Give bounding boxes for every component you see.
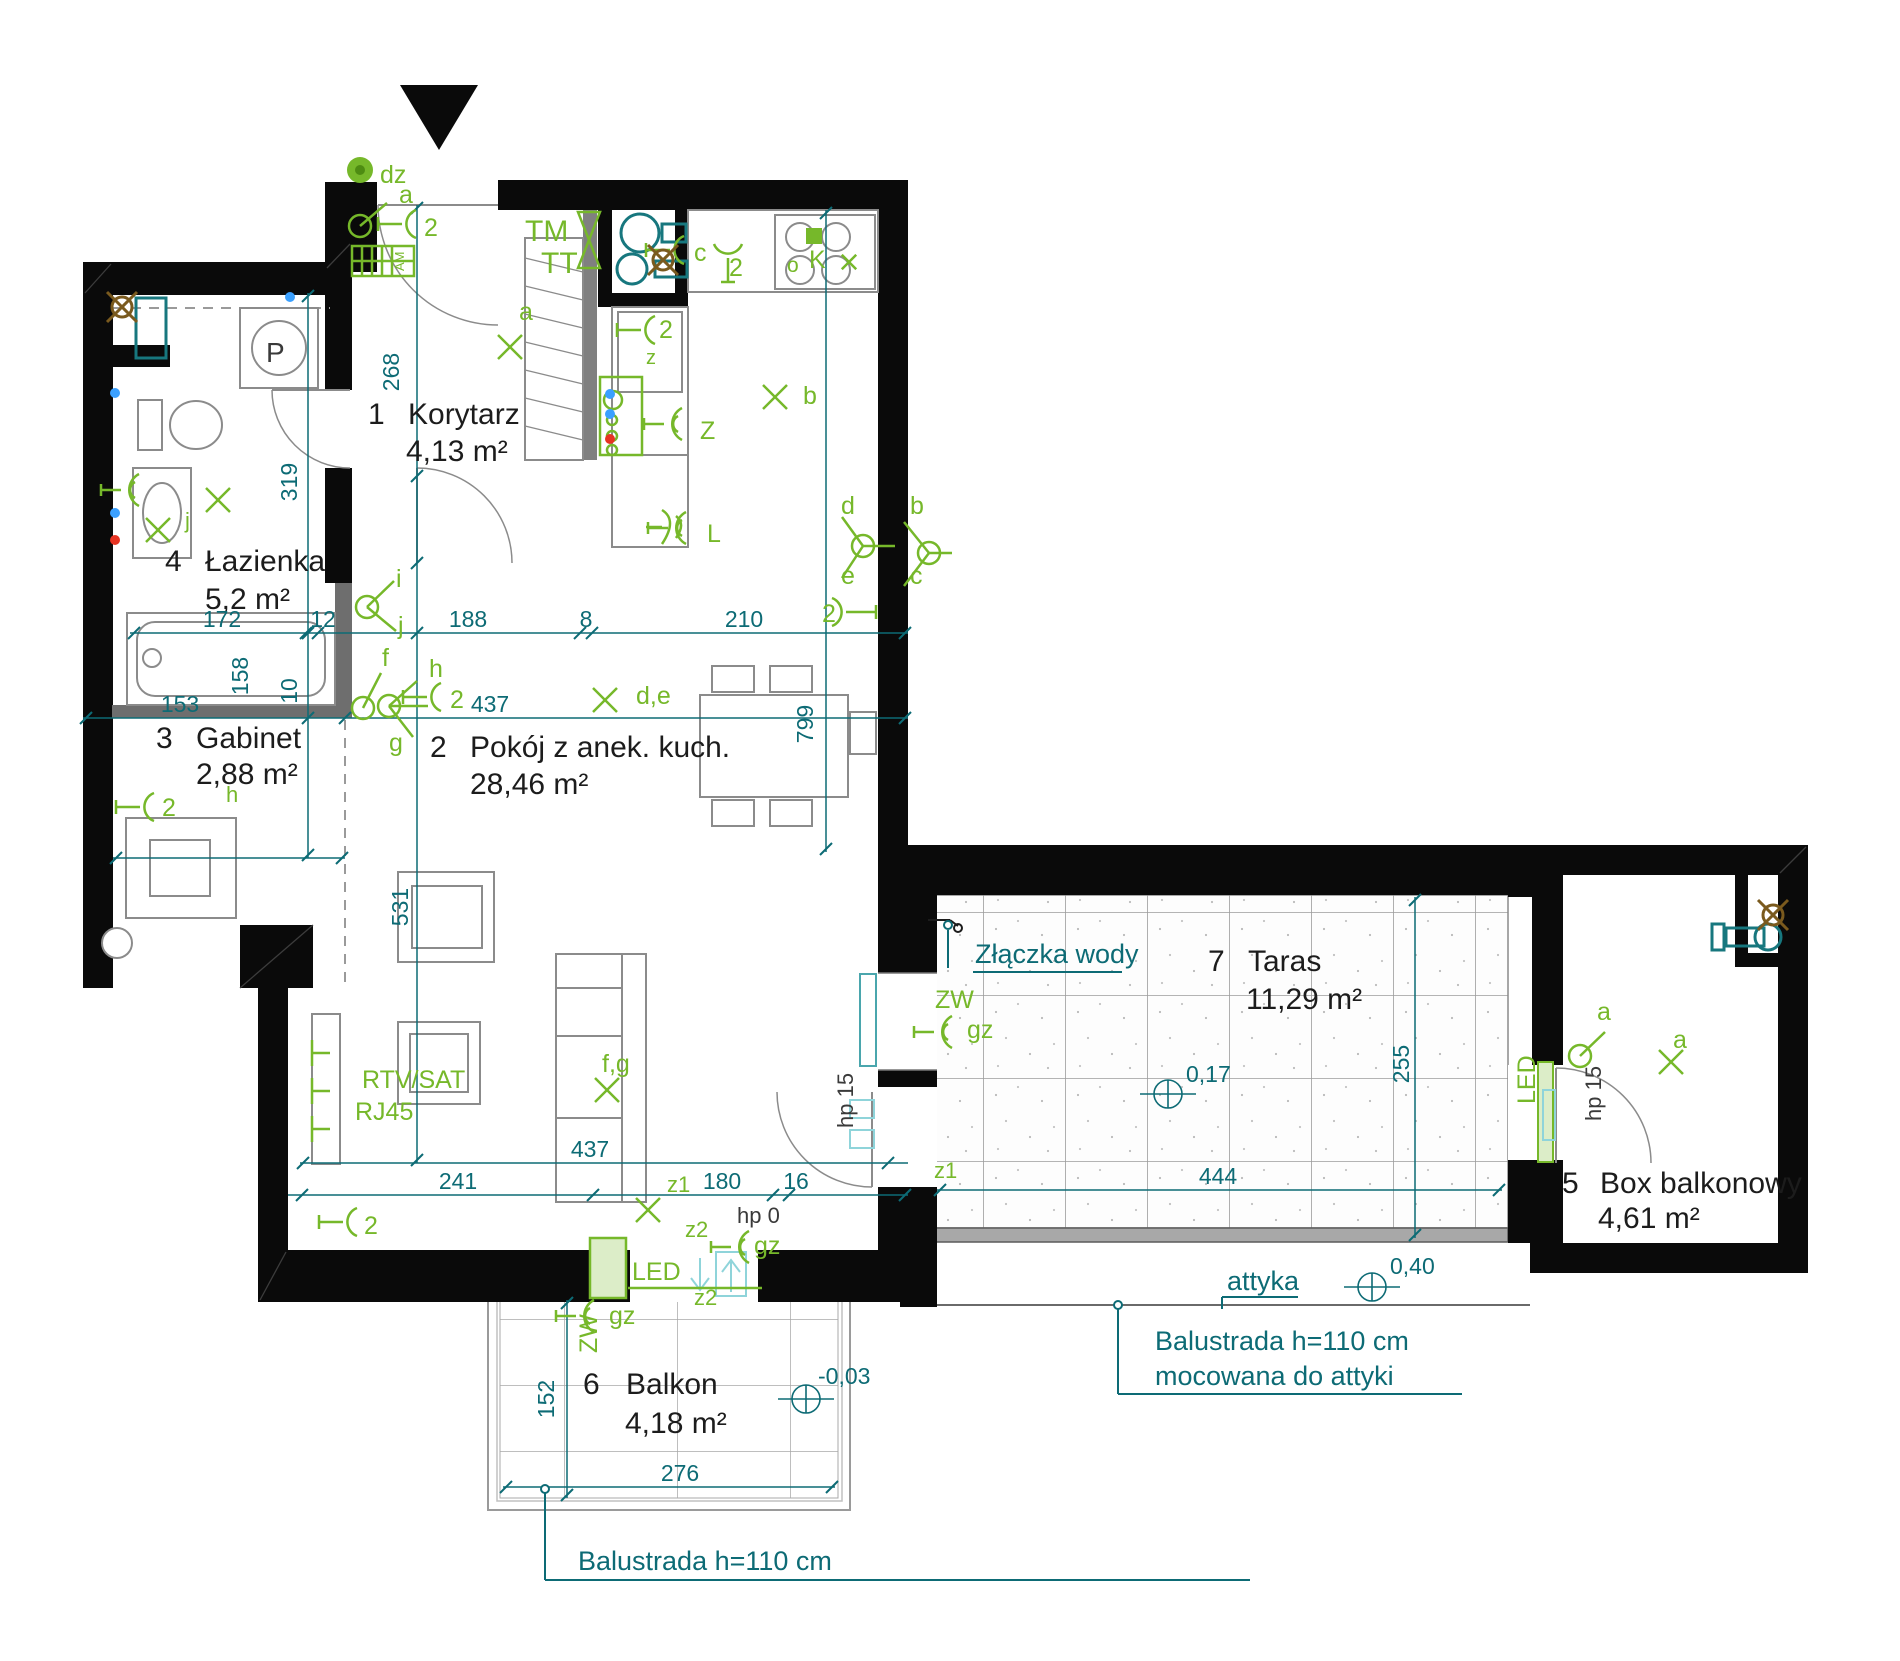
elevation-label: 0,17 bbox=[1186, 1061, 1231, 1087]
rtv-socket-icons bbox=[312, 1040, 330, 1142]
chair bbox=[770, 666, 812, 692]
room-area: 28,46 m² bbox=[470, 768, 588, 801]
room-name: Korytarz bbox=[408, 398, 520, 431]
electric-label: gz bbox=[609, 1302, 635, 1330]
electric-label: TT bbox=[541, 247, 578, 280]
kitchen-sink-bowl bbox=[617, 254, 647, 284]
tv-stand bbox=[312, 1014, 340, 1164]
note-label: mocowana do attyki bbox=[1155, 1361, 1394, 1391]
height-label: hp 15 bbox=[833, 1073, 858, 1128]
sock-icon bbox=[116, 793, 154, 821]
room-number: 4 bbox=[165, 545, 182, 578]
electric-label: 2 bbox=[659, 316, 673, 344]
electric-label: a bbox=[519, 298, 533, 326]
room-door-arc bbox=[417, 468, 512, 563]
sw-icon bbox=[352, 673, 381, 719]
room-name: Pokój z anek. kuch. bbox=[470, 731, 730, 764]
room-name: Box balkonowy bbox=[1600, 1167, 1802, 1200]
wall-box-bottom bbox=[1530, 1243, 1808, 1273]
taras-railing bbox=[935, 1228, 1508, 1242]
sw-icon bbox=[356, 581, 396, 631]
electric-label: h bbox=[429, 655, 443, 683]
electric-label: o bbox=[787, 254, 799, 277]
dimension-label: 153 bbox=[161, 691, 199, 717]
dot-icon bbox=[605, 409, 615, 419]
room-number: 7 bbox=[1208, 945, 1225, 978]
room-area: 4,13 m² bbox=[406, 435, 508, 468]
electric-label: b bbox=[910, 492, 924, 520]
electric-label: 2 bbox=[424, 214, 438, 242]
x-icon bbox=[595, 1078, 619, 1102]
x-icon bbox=[498, 335, 522, 359]
drain-icon bbox=[107, 292, 137, 322]
ring-icon bbox=[1114, 1301, 1122, 1309]
electric-label: gz bbox=[754, 1232, 780, 1260]
electric-label: AM bbox=[392, 252, 407, 272]
dimension-label: 276 bbox=[661, 1460, 699, 1486]
toilet-bowl bbox=[170, 401, 222, 449]
room-name: Łazienka bbox=[205, 545, 325, 578]
dimension-label: 268 bbox=[378, 353, 404, 391]
x-icon bbox=[763, 385, 787, 409]
chair bbox=[712, 666, 754, 692]
height-label: P bbox=[266, 337, 285, 368]
room-number: 5 bbox=[1562, 1167, 1579, 1200]
room-number: 6 bbox=[583, 1368, 600, 1401]
electric-label: 2 bbox=[162, 794, 176, 822]
note-label: Balustrada h=110 cm bbox=[1155, 1326, 1409, 1356]
dimension-label: 158 bbox=[227, 657, 253, 695]
electric-label: K bbox=[809, 246, 826, 274]
dimension-label: 531 bbox=[387, 888, 413, 926]
dimension-label: 255 bbox=[1388, 1045, 1414, 1083]
electric-label: RTV/SAT bbox=[362, 1066, 465, 1094]
electric-label: f,g bbox=[602, 1050, 630, 1078]
room-area: 4,61 m² bbox=[1598, 1202, 1700, 1235]
dimension-label: 10 bbox=[276, 678, 302, 704]
column bbox=[102, 928, 132, 958]
wall-kitchen-top bbox=[498, 180, 908, 210]
electric-label: a bbox=[1597, 998, 1611, 1026]
room-number: 2 bbox=[430, 731, 447, 764]
electric-label: ZW bbox=[935, 986, 974, 1014]
sw-icon bbox=[1569, 1032, 1605, 1067]
electric-label: gz bbox=[967, 1016, 993, 1044]
electric-label: 2 bbox=[729, 254, 743, 282]
electric-label: g bbox=[389, 729, 403, 757]
wall-bottom-right bbox=[758, 1250, 908, 1302]
bath-door-arc bbox=[272, 390, 350, 468]
wall-right bbox=[878, 180, 908, 973]
dot-icon bbox=[285, 292, 295, 302]
wall-kitchen-shaft bbox=[598, 210, 612, 307]
dot-icon bbox=[605, 434, 615, 444]
electric-label: z1 bbox=[667, 1172, 690, 1197]
taras-window bbox=[878, 973, 937, 1070]
dimension-label: 16 bbox=[783, 1168, 809, 1194]
dimension-label: 8 bbox=[580, 606, 593, 632]
sock-icon bbox=[832, 598, 876, 626]
electric-label: z bbox=[646, 347, 656, 369]
chair bbox=[712, 800, 754, 826]
note-label: attyka bbox=[1227, 1266, 1300, 1296]
kitchen-counter-side bbox=[612, 307, 688, 547]
drain-icon bbox=[1758, 900, 1788, 930]
electric-label: z2 bbox=[685, 1217, 708, 1242]
wall-korytarz-bath bbox=[325, 270, 352, 390]
cooker-connection-icon bbox=[806, 228, 822, 244]
dimension-label: 444 bbox=[1199, 1163, 1238, 1189]
electric-label: L bbox=[707, 520, 721, 548]
sofa bbox=[556, 954, 646, 1202]
electric-label: b bbox=[803, 382, 817, 410]
dimension-label: 437 bbox=[471, 691, 509, 717]
dimension-label: 210 bbox=[725, 606, 763, 632]
electric-label: d bbox=[841, 492, 855, 520]
dimension-label: 12 bbox=[310, 606, 336, 632]
floor-plan: 1Korytarz4,13 m²2Pokój z anek. kuch.28,4… bbox=[0, 0, 1900, 1661]
electric-label: h bbox=[226, 782, 238, 807]
kitchen-counter-top bbox=[688, 210, 878, 292]
electric-label: c bbox=[910, 562, 923, 590]
dimension-label: 799 bbox=[792, 705, 818, 743]
taras-door bbox=[878, 1087, 937, 1187]
x-icon bbox=[636, 1198, 660, 1222]
dimension-label: 172 bbox=[203, 606, 241, 632]
electric-label: j bbox=[397, 612, 404, 640]
electric-label: i bbox=[396, 565, 402, 593]
room-name: Balkon bbox=[626, 1368, 718, 1401]
sock-icon bbox=[319, 1208, 357, 1236]
electric-label: LED bbox=[1513, 1055, 1541, 1104]
elevation-label: -0,03 bbox=[818, 1363, 870, 1389]
x-icon bbox=[146, 518, 170, 542]
dot-icon bbox=[110, 535, 120, 545]
kitchen-sink-bowl bbox=[621, 214, 659, 252]
window-parapet bbox=[860, 974, 876, 1066]
dimension-label: 188 bbox=[449, 606, 487, 632]
electric-label: j bbox=[184, 508, 190, 533]
electric-label: e bbox=[841, 562, 855, 590]
dimension-label: 437 bbox=[571, 1136, 609, 1162]
chair bbox=[770, 800, 812, 826]
electric-label: a bbox=[399, 181, 413, 209]
ring-icon bbox=[944, 921, 952, 929]
electric-label: d,e bbox=[636, 682, 671, 710]
wall-left bbox=[83, 262, 113, 988]
electric-label: Z bbox=[700, 417, 715, 445]
dimension-label: 319 bbox=[276, 463, 302, 501]
tap-icon bbox=[644, 408, 682, 440]
room-name: Taras bbox=[1248, 945, 1321, 978]
electric-label: z1 bbox=[934, 1158, 957, 1183]
electric-label: TM bbox=[525, 215, 568, 248]
wall-bottom-left bbox=[258, 1250, 630, 1302]
x-icon bbox=[593, 688, 617, 712]
room-number: 1 bbox=[368, 398, 385, 431]
dot-icon bbox=[110, 388, 120, 398]
electric-label: LED bbox=[632, 1258, 681, 1286]
electric-label: 2 bbox=[822, 600, 836, 628]
bath-sink bbox=[133, 468, 191, 558]
note-label: Balustrada h=110 cm bbox=[578, 1546, 832, 1576]
room-area: 4,18 m² bbox=[625, 1407, 727, 1440]
room-area: 11,29 m² bbox=[1246, 983, 1362, 1016]
entrance-arrow-icon bbox=[400, 85, 478, 150]
room-number: 3 bbox=[156, 722, 173, 755]
electric-label: z2 bbox=[694, 1285, 717, 1310]
height-label: hp 0 bbox=[737, 1203, 780, 1228]
dot-icon bbox=[110, 508, 120, 518]
wall-taras-box-top bbox=[905, 845, 1808, 875]
ring-icon bbox=[541, 1485, 549, 1493]
wall-bath-top bbox=[83, 262, 350, 295]
desk bbox=[126, 818, 236, 918]
floor-plan-canvas: 1Korytarz4,13 m²2Pokój z anek. kuch.28,4… bbox=[0, 0, 1900, 1661]
dimension-label: 241 bbox=[439, 1168, 477, 1194]
room-name: Gabinet bbox=[196, 722, 302, 755]
toilet-tank bbox=[138, 400, 162, 450]
electric-label: ZW bbox=[575, 1314, 603, 1353]
elevation-label: 0,40 bbox=[1390, 1253, 1435, 1279]
drain-icon bbox=[648, 245, 678, 275]
electric-label: RJ45 bbox=[355, 1098, 413, 1126]
room-area: 2,88 m² bbox=[196, 758, 298, 791]
note-label: Złączka wody bbox=[975, 939, 1139, 969]
dot-icon bbox=[605, 389, 615, 399]
electric-label: f bbox=[382, 644, 389, 672]
electric-label: c bbox=[694, 239, 707, 267]
dimension-label: 152 bbox=[533, 1380, 559, 1418]
led-strip bbox=[590, 1238, 626, 1298]
sw-icon bbox=[378, 681, 428, 737]
plumbing-fixtures bbox=[136, 214, 1781, 953]
electric-label: a bbox=[1673, 1026, 1687, 1054]
x-icon bbox=[206, 488, 230, 512]
sock-icon bbox=[617, 316, 655, 344]
electric-label: 2 bbox=[450, 686, 464, 714]
electric-label: 2 bbox=[364, 1212, 378, 1240]
sock-icon bbox=[378, 210, 416, 238]
dimension-label: 180 bbox=[703, 1168, 741, 1194]
height-label: hp 15 bbox=[1581, 1066, 1606, 1121]
